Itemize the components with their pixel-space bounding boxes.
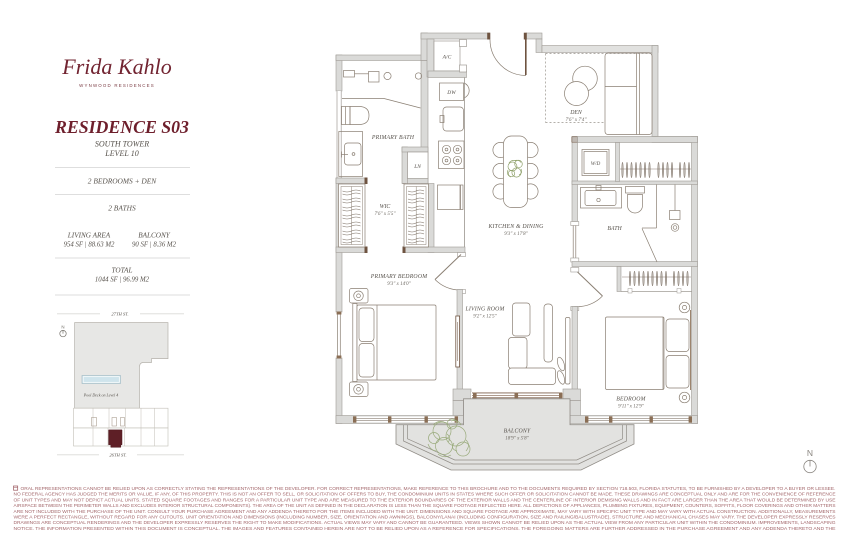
svg-text:NOTICE. THE INFORMATION PRESEN: NOTICE. THE INFORMATION PRESENTED WITHIN… [14, 526, 836, 531]
svg-text:7'6" x 7'4": 7'6" x 7'4" [565, 118, 587, 123]
svg-text:KITCHEN & DINING: KITCHEN & DINING [487, 224, 544, 230]
svg-text:2 BEDROOMS + DEN: 2 BEDROOMS + DEN [88, 177, 157, 186]
svg-text:LIVING AREA: LIVING AREA [67, 232, 111, 240]
svg-text:LN: LN [413, 164, 421, 170]
svg-text:BALCONY: BALCONY [138, 232, 171, 240]
svg-text:9'2" x 12'5": 9'2" x 12'5" [473, 315, 497, 320]
svg-text:SOUTH TOWER: SOUTH TOWER [95, 140, 149, 149]
svg-text:TOTAL: TOTAL [112, 267, 133, 275]
svg-text:AIRSPACE BETWEEN THE PERIMETER: AIRSPACE BETWEEN THE PERIMETER WALLS AND… [14, 503, 836, 508]
svg-text:RESIDENCE S03: RESIDENCE S03 [54, 117, 189, 137]
svg-text:2 BATHS: 2 BATHS [108, 204, 136, 213]
svg-text:ARE NOT INCLUDED WITH THE PURC: ARE NOT INCLUDED WITH THE PURCHASE OF TH… [14, 509, 836, 514]
svg-text:LEVEL 10: LEVEL 10 [104, 149, 138, 158]
svg-text:A/C: A/C [442, 55, 452, 61]
svg-text:PRIMARY BATH: PRIMARY BATH [371, 135, 415, 141]
svg-text:WYNWOOD RESIDENCES: WYNWOOD RESIDENCES [79, 83, 155, 88]
svg-text:27TH ST.: 27TH ST. [111, 312, 128, 317]
svg-text:OF UNIT TYPES AND MAY NOT DEPI: OF UNIT TYPES AND MAY NOT DEPICT ACTUAL … [14, 497, 836, 502]
svg-text:9'3" x 14'0": 9'3" x 14'0" [387, 282, 411, 287]
svg-text:Frida Kahlo: Frida Kahlo [61, 54, 171, 79]
svg-text:PRIMARY BEDROOM: PRIMARY BEDROOM [370, 274, 428, 280]
svg-text:90 SF | 8.36 M2: 90 SF | 8.36 M2 [132, 242, 177, 249]
svg-text:N: N [61, 325, 64, 330]
svg-text:9'3" x 17'8": 9'3" x 17'8" [504, 232, 528, 237]
svg-text:NO FEDERAL AGENCY HAS JUDGED T: NO FEDERAL AGENCY HAS JUDGED THE MERITS … [14, 492, 836, 497]
svg-text:7'6" x 5'5": 7'6" x 5'5" [374, 212, 396, 217]
svg-text:18'9" x 5'8": 18'9" x 5'8" [505, 437, 529, 442]
svg-text:BALCONY: BALCONY [504, 429, 531, 435]
svg-text:W/D: W/D [591, 161, 601, 167]
svg-text:BATH: BATH [607, 226, 622, 232]
svg-text:9'11" x 12'9": 9'11" x 12'9" [618, 405, 645, 410]
svg-text:DEN: DEN [569, 110, 583, 116]
svg-text:Pool Deck on Level 4: Pool Deck on Level 4 [83, 393, 118, 398]
svg-text:DW: DW [446, 90, 456, 96]
svg-text:26TH ST.: 26TH ST. [109, 453, 126, 458]
svg-text:N: N [807, 448, 813, 458]
svg-text:DRAWINGS ARE CONCEPTUAL RENDER: DRAWINGS ARE CONCEPTUAL RENDERINGS AND T… [14, 520, 836, 525]
svg-text:BEDROOM: BEDROOM [616, 397, 646, 403]
svg-text:LIVING ROOM: LIVING ROOM [464, 307, 505, 313]
svg-text:WERE A PERFECT RECTANGLE, WITH: WERE A PERFECT RECTANGLE, WITHOUT REGARD… [14, 515, 836, 520]
svg-text:954 SF | 88.63 M2: 954 SF | 88.63 M2 [64, 242, 115, 249]
svg-text:ORAL REPRESENTATIONS CANNOT BE: ORAL REPRESENTATIONS CANNOT BE RELIED UP… [21, 486, 836, 491]
svg-text:1044 SF | 96.99 M2: 1044 SF | 96.99 M2 [95, 277, 150, 284]
svg-text:WIC: WIC [380, 204, 391, 210]
